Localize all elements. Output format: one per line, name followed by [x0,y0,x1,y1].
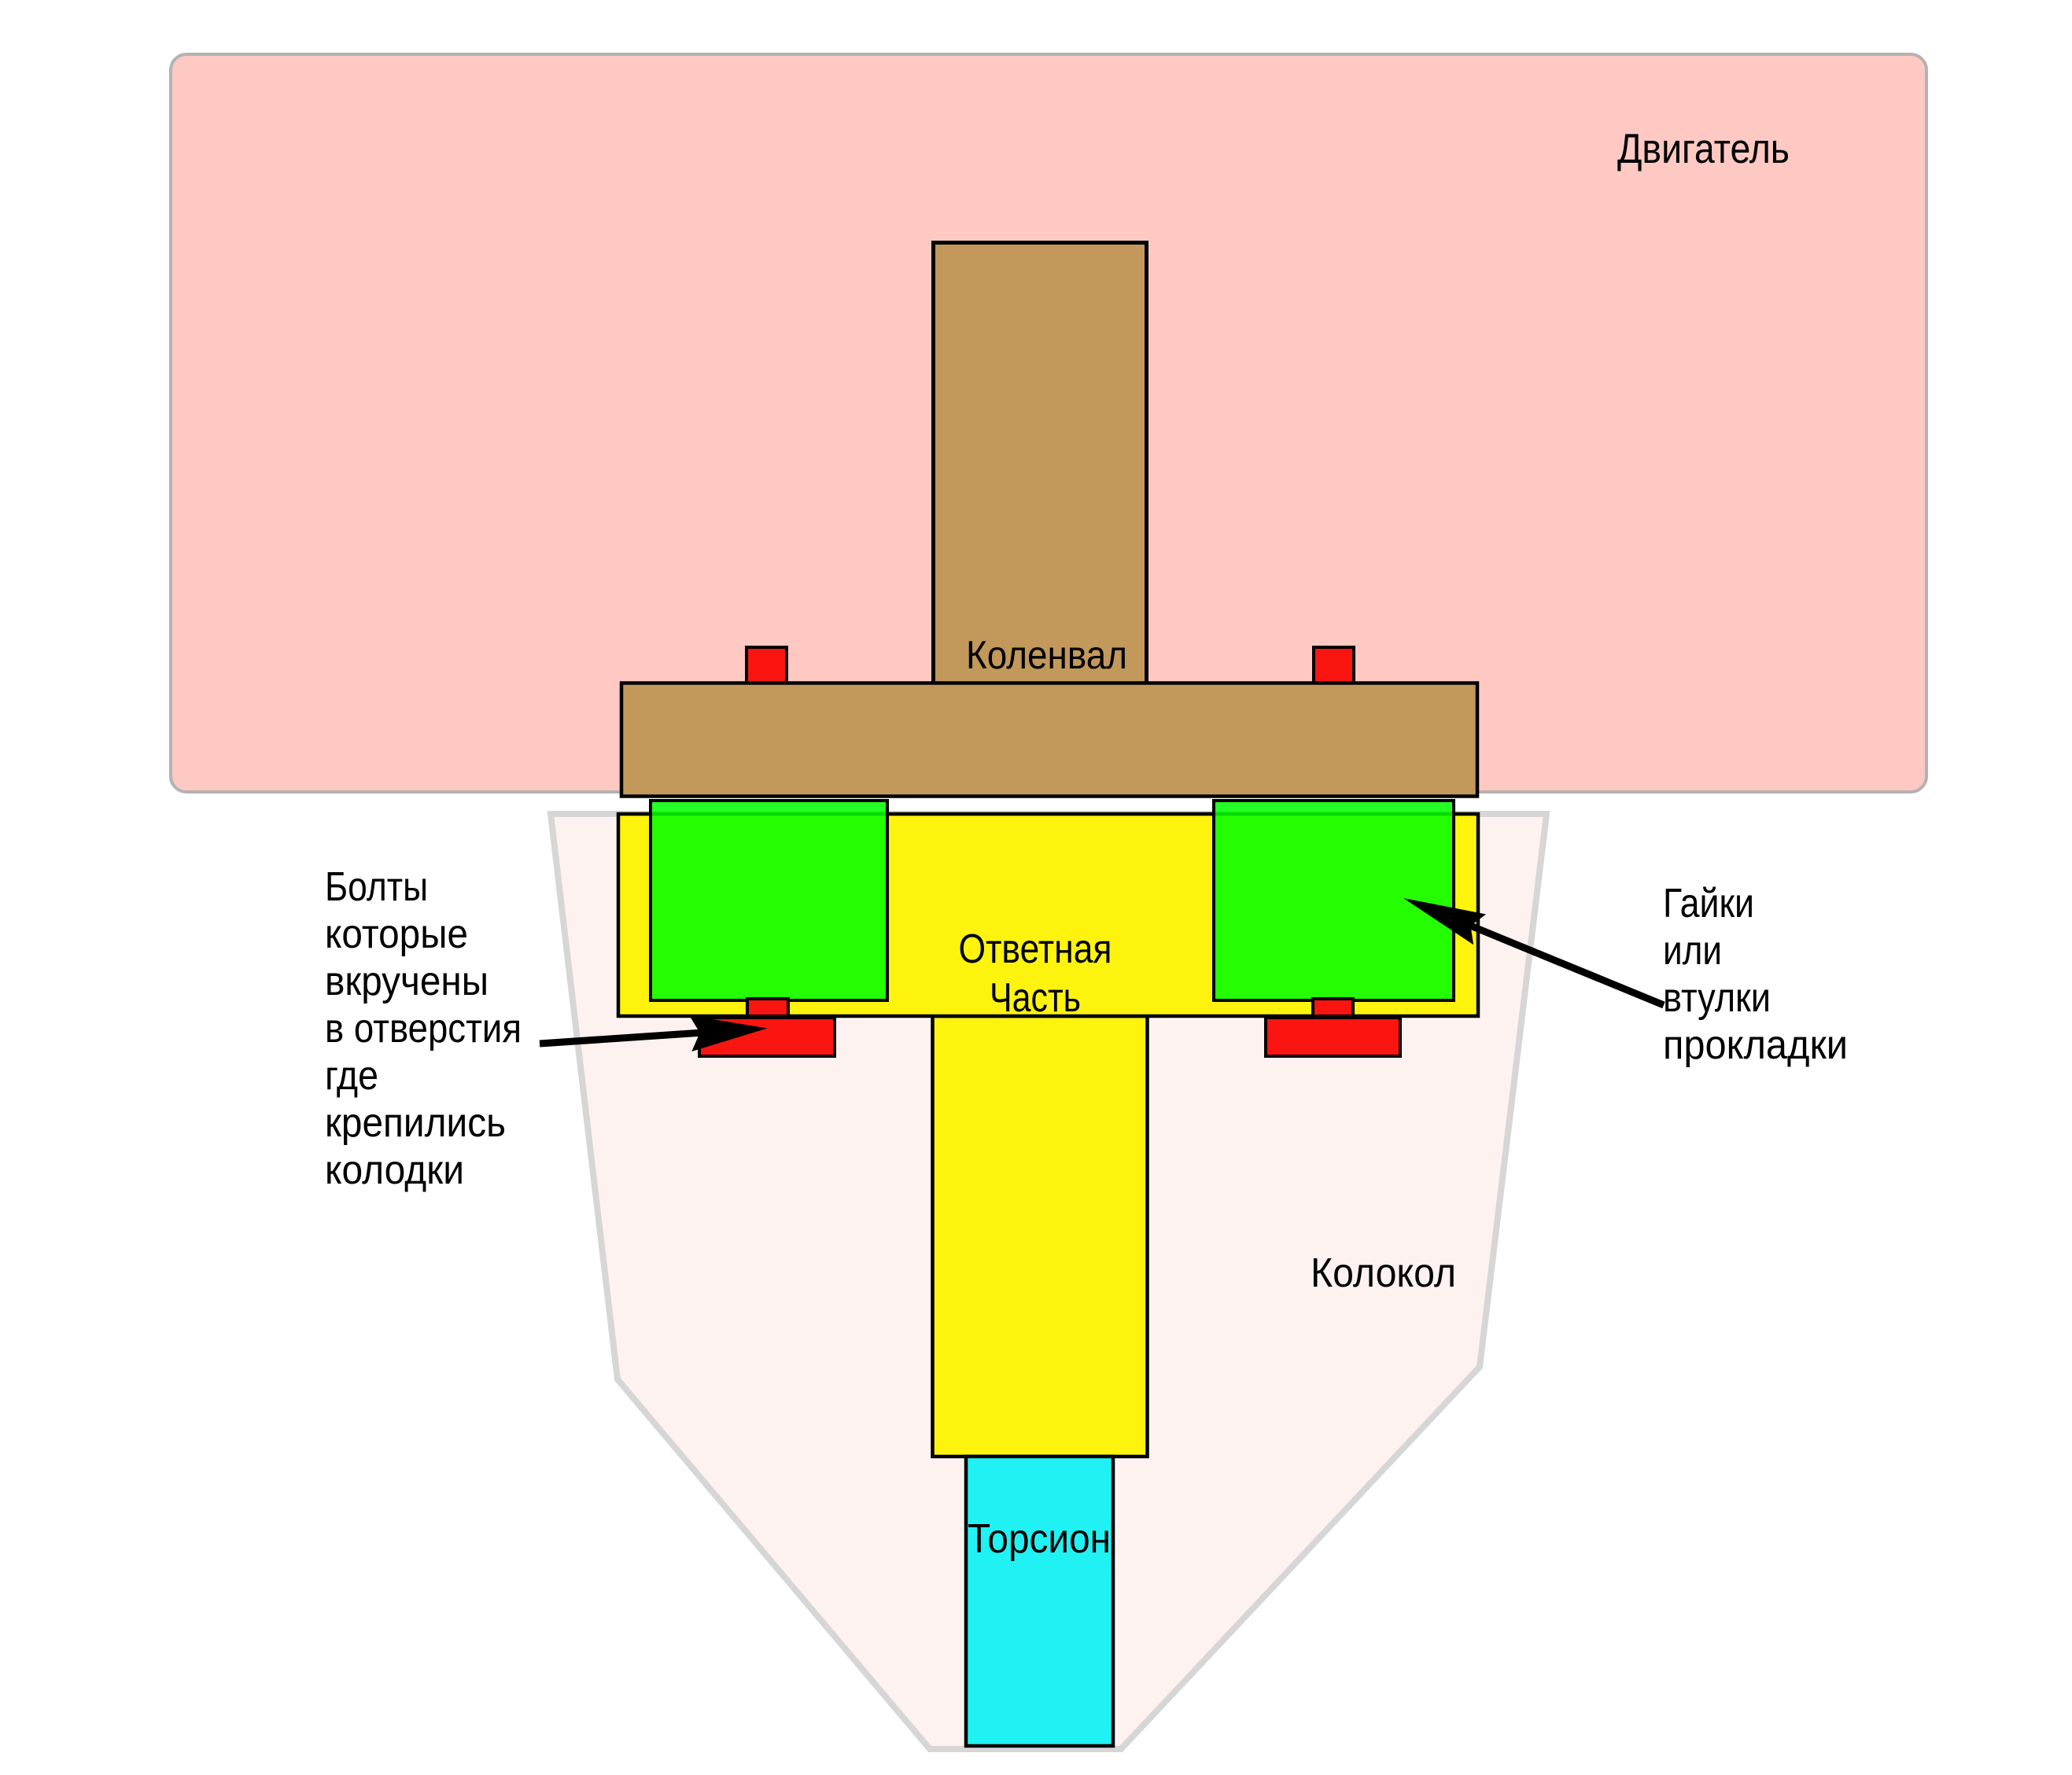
svg-text:вкручены: вкручены [325,959,489,1004]
svg-text:Двигатель: Двигатель [1617,126,1790,172]
svg-text:крепились: крепились [325,1100,506,1146]
svg-text:или: или [1663,928,1722,974]
svg-text:Болты: Болты [325,864,428,910]
svg-text:колодки: колодки [325,1147,464,1193]
svg-text:Коленвал: Коленвал [966,633,1127,677]
svg-text:где: где [325,1053,378,1099]
svg-text:Ответная: Ответная [959,926,1112,972]
svg-text:Колокол: Колокол [1311,1250,1456,1296]
svg-text:Торсион: Торсион [968,1516,1111,1562]
svg-text:которые: которые [325,911,468,957]
svg-text:Гайки: Гайки [1663,881,1754,926]
svg-text:прокладки: прокладки [1663,1022,1848,1068]
svg-text:втулки: втулки [1663,975,1771,1021]
svg-text:в отверстия: в отверстия [325,1006,522,1051]
svg-text:Часть: Часть [990,975,1081,1021]
